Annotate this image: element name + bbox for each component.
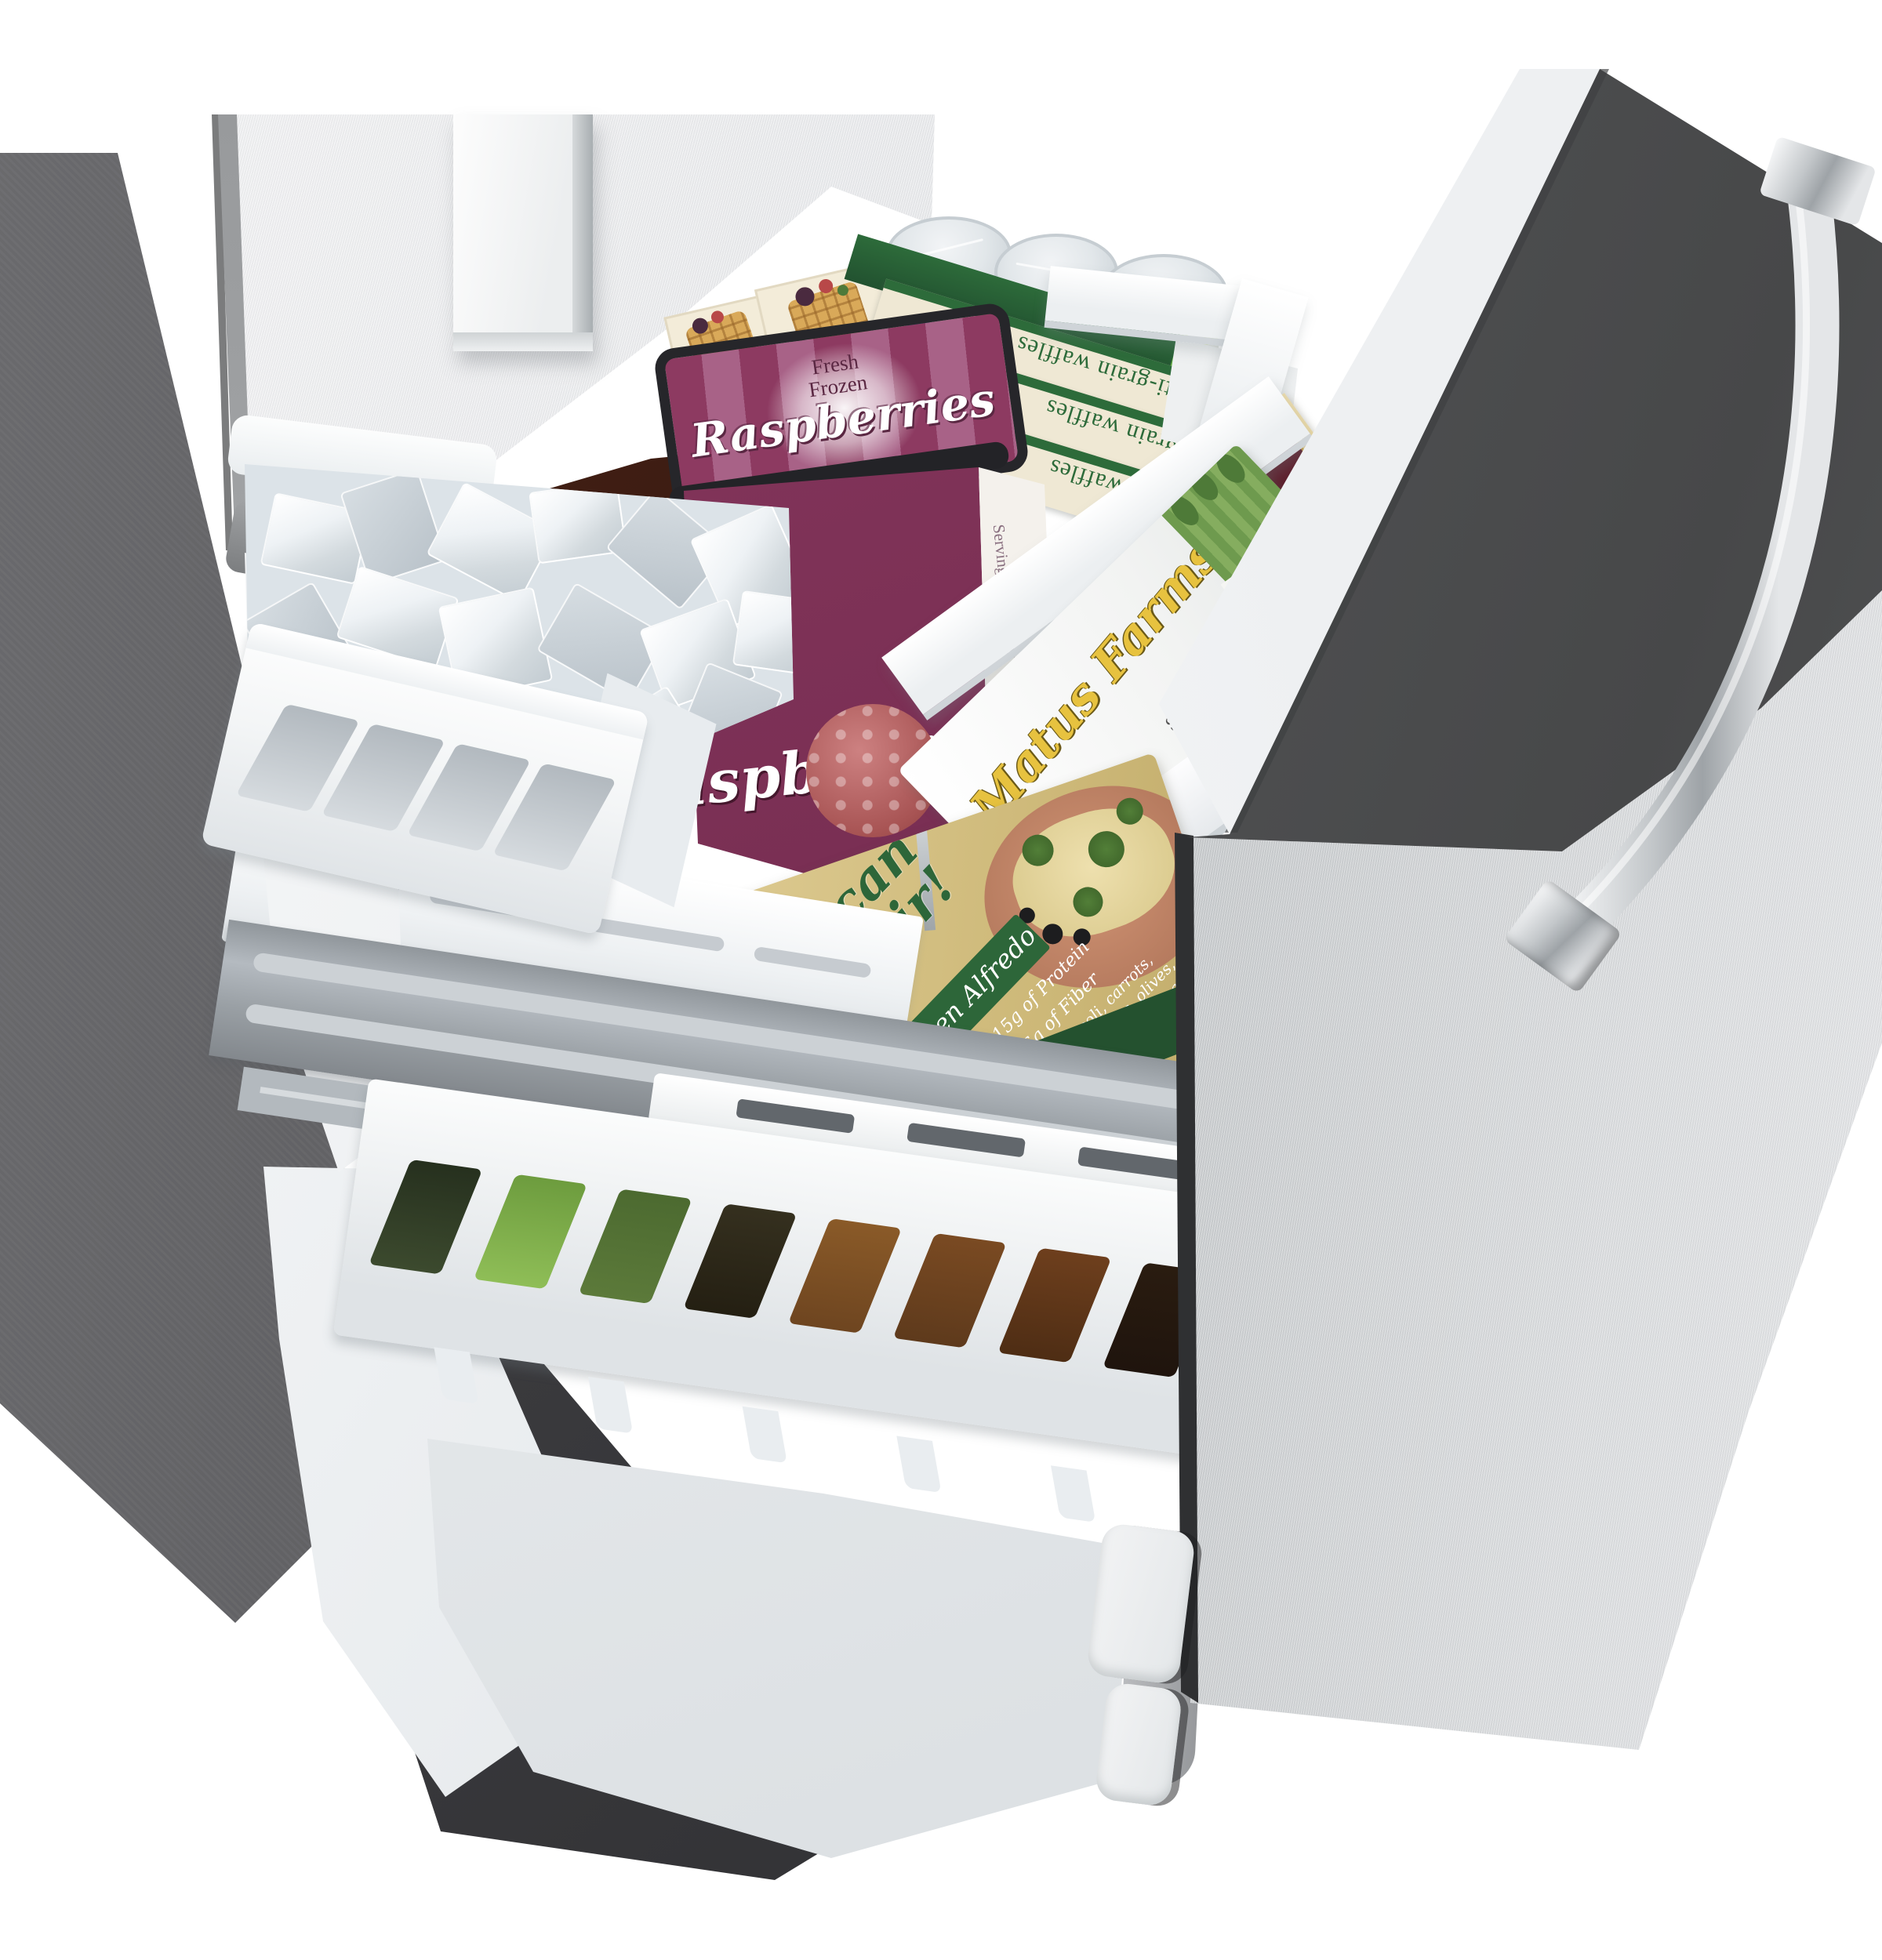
refrigerator-freezer-photo: E-L USDA ORGANIC multi-grain waffles mul… <box>0 0 1882 1960</box>
drawer-handle-svg <box>0 0 1882 1960</box>
